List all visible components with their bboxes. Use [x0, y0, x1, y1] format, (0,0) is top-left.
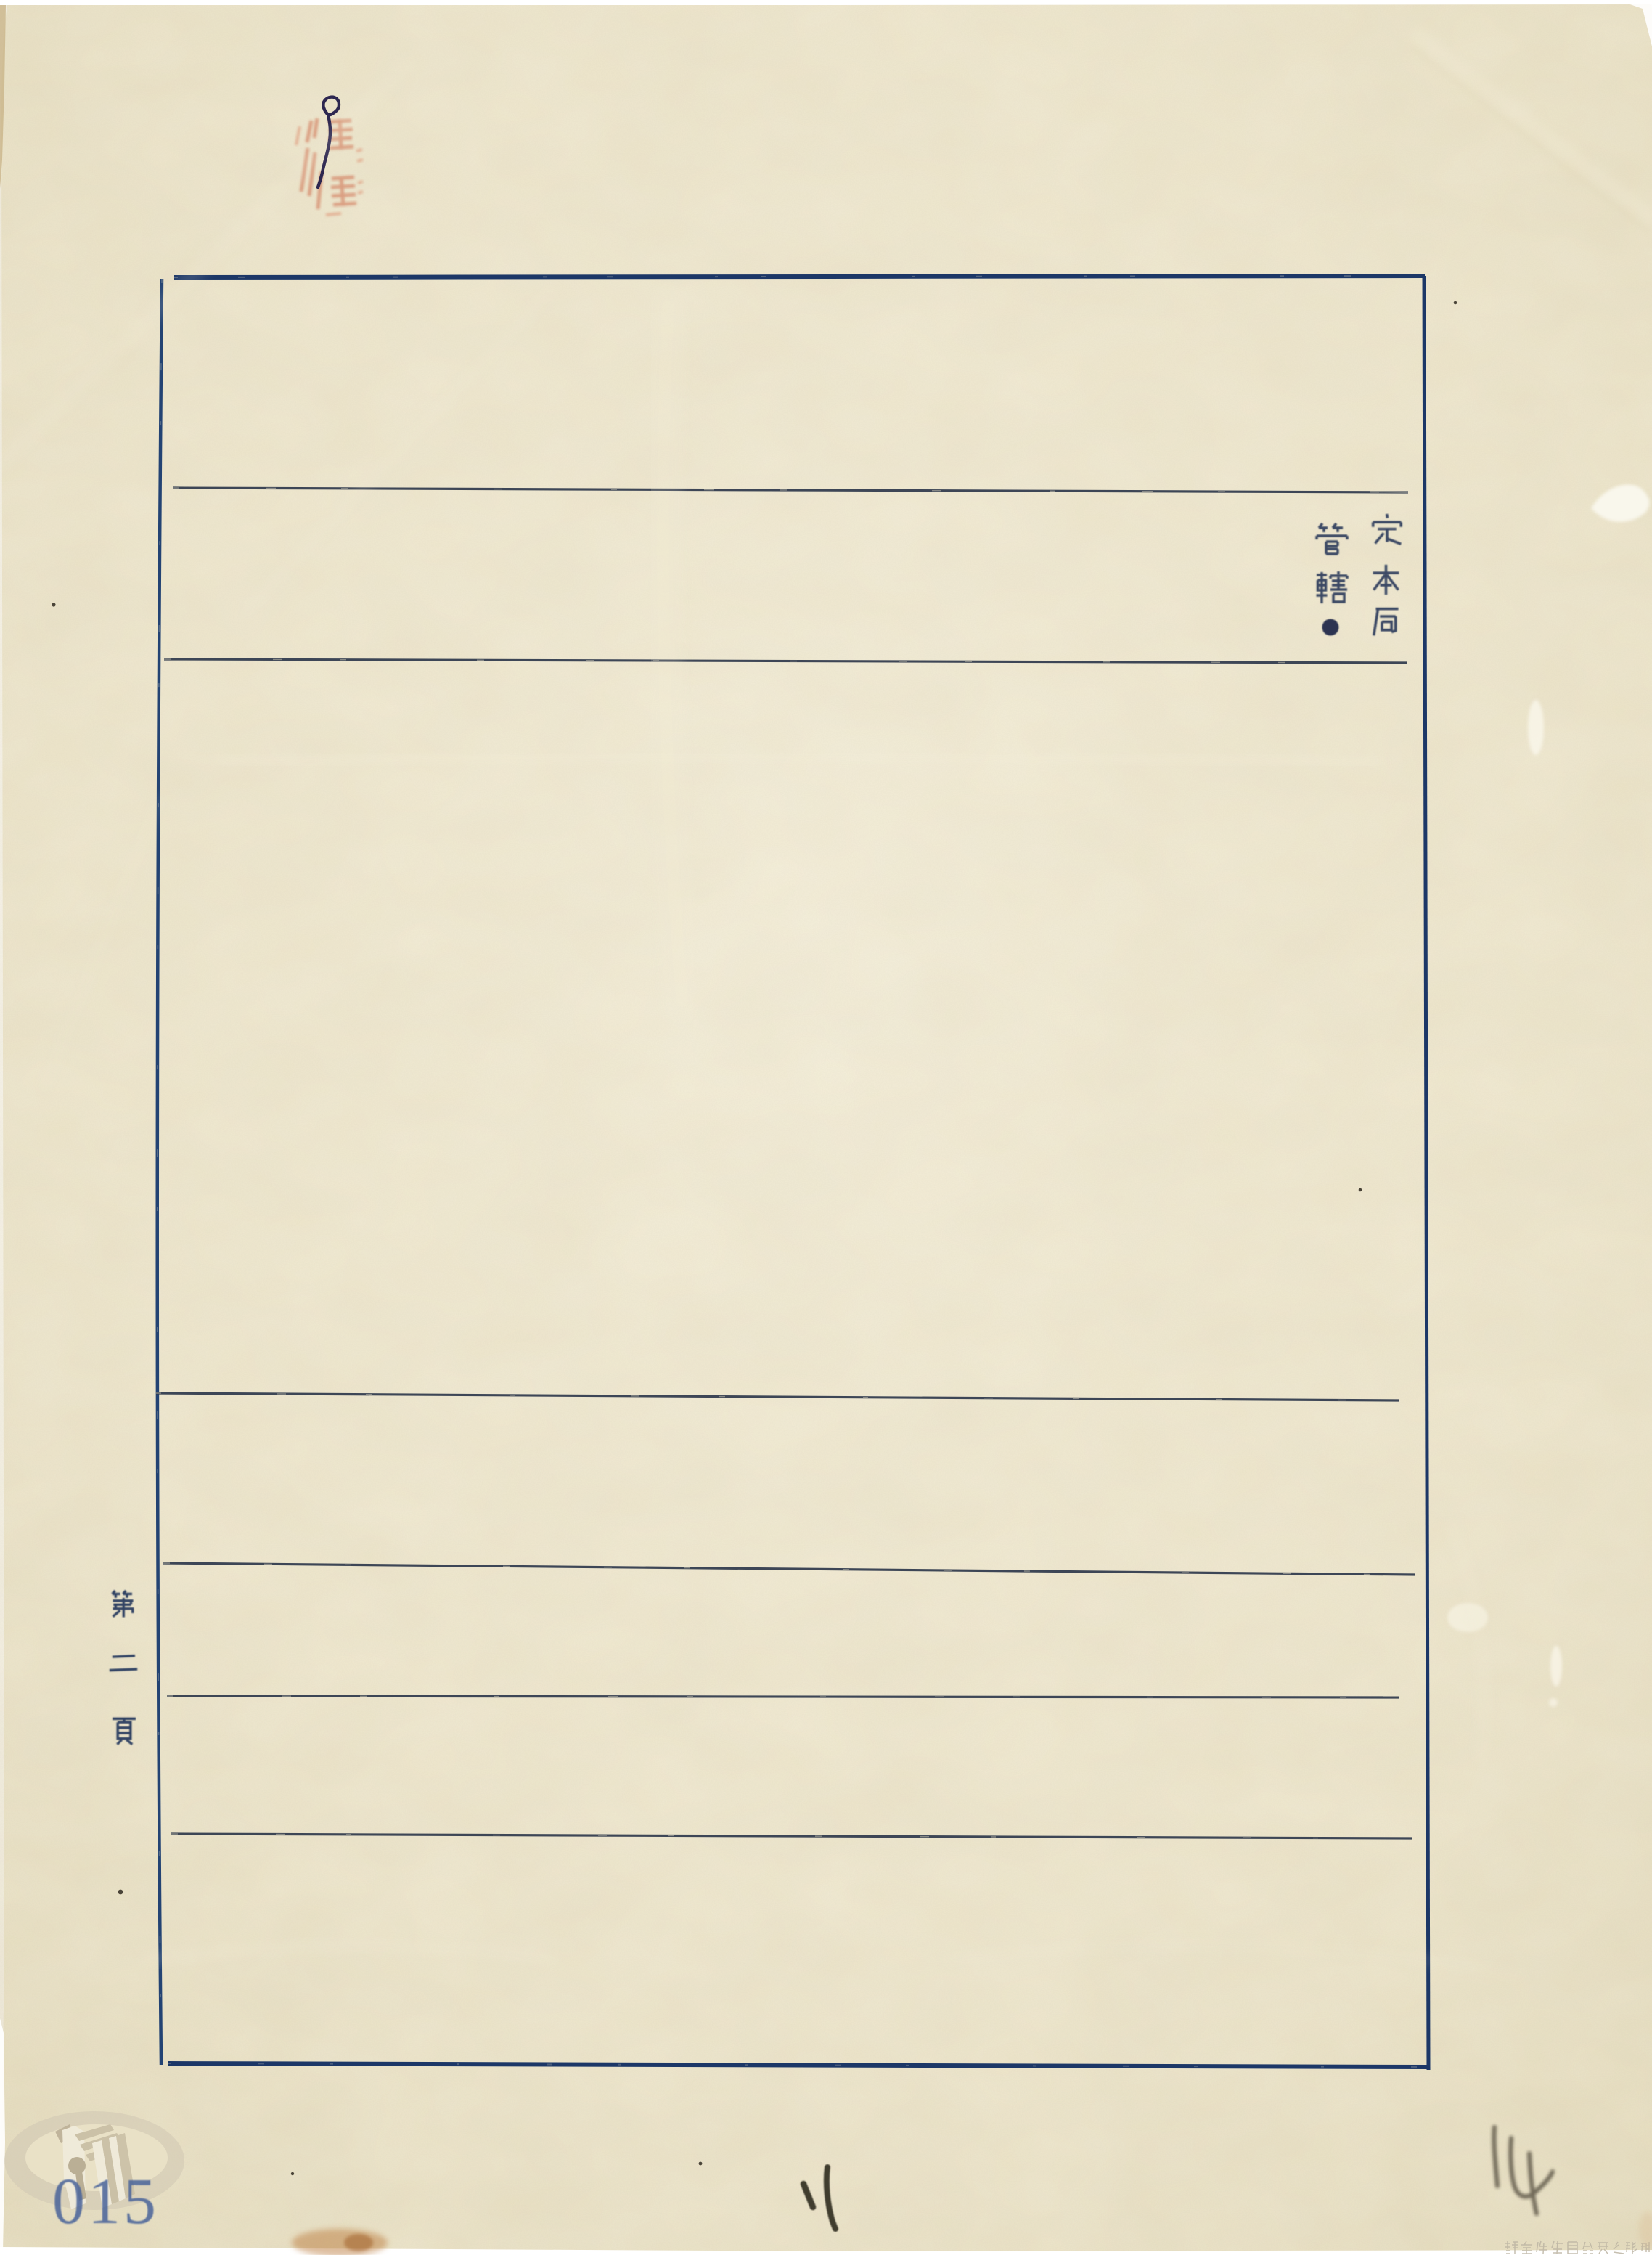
svg-text:015: 015 — [52, 2166, 159, 2238]
